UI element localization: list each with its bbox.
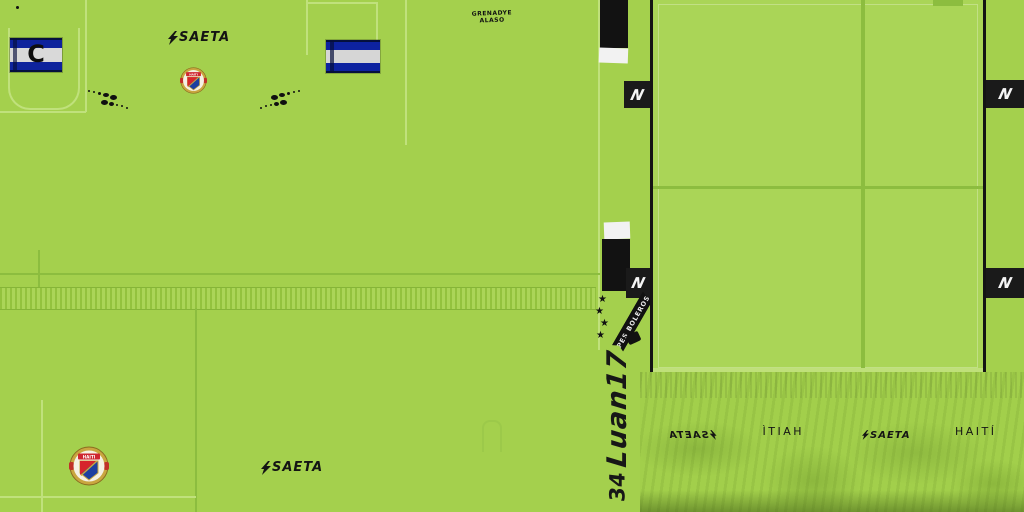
chest-seam [0,111,86,113]
team-crest-top: HAITI [180,67,207,94]
brand-logo-text: SAETA [179,30,230,45]
lightning-icon [261,461,271,475]
placket-tab-white-top [599,47,629,63]
sleeve-seam-top [306,2,378,4]
shoulder-seam [85,0,87,112]
lightning-icon [168,31,178,45]
waist-label-saeta-mirrored: SAETA [668,425,717,444]
neck-label-line2: ALASO [460,16,524,25]
waist-label-haiti: HAITÍ [955,425,997,438]
brand-logo-top: SAETA [168,30,230,45]
placket-tab-black-top [600,0,628,48]
shorts-panel [650,0,986,372]
player-name-text: Luan17 [603,348,634,469]
waist-label-haiti-mirrored: HAITÍ [760,425,802,438]
n-mark-box-4: N [986,268,1024,298]
waist-label-text: SAETA [870,430,911,441]
belt-loop-outline [482,420,502,452]
stitch-dot [16,6,19,9]
crest-name-text: HAITI [189,72,198,76]
placket-tab-white-mid [604,222,631,240]
waist-label-text: HAITÍ [760,425,802,438]
brand-logo-text: SAETA [272,460,323,475]
brand-logo-bottom: SAETA [261,460,323,475]
star-icon: ★ [595,306,609,317]
star-icon: ★ [598,294,609,305]
shorts-horizontal-seam [653,186,983,189]
team-crest-bottom: HAITI [69,446,109,486]
lower-horizontal-seam [0,496,196,498]
neck-label: GRENADYE ALASO [460,9,524,25]
lightning-icon [710,430,717,440]
lower-vertical-seam [195,308,197,512]
waist-label-text: HAITÍ [955,425,997,438]
sleeve-seam-left [306,0,308,55]
lightning-icon [862,430,869,440]
player-number: 34 [598,462,638,512]
waist-label-saeta: SAETA [862,425,911,444]
captain-armband: C [10,38,62,72]
ribbed-hem-band [0,287,596,310]
crest-name-text: HAITI [83,454,96,459]
hem-vertical-seam [38,250,40,287]
n-mark-glyph: N [996,274,1013,292]
n-mark-glyph: N [628,86,645,104]
eyelet-dots-right [252,88,300,110]
side-seam-top [405,0,407,145]
flag-patch [326,40,380,73]
eyelet-dots-left [88,88,136,110]
n-mark-box-2: N [986,80,1024,108]
star-icon: ★ [596,330,609,341]
texture-patch [933,0,963,6]
captain-letter: C [10,40,62,68]
n-mark-glyph: N [996,85,1013,103]
player-name: Luan17 [594,348,642,468]
star-icon: ★ [600,318,609,329]
kit-texture-canvas: C SAETA HAITI GRENADYE ALASO [0,0,1024,512]
flag-fold-edge [330,40,334,73]
hem-seam [0,273,600,275]
n-mark-box-1: N [624,81,650,108]
waist-label-text: SAETA [668,430,709,441]
sleeve-seam-right [376,2,378,40]
player-number-text: 34 [606,471,630,503]
badge-stars: ★ ★ ★ ★ [598,294,609,341]
